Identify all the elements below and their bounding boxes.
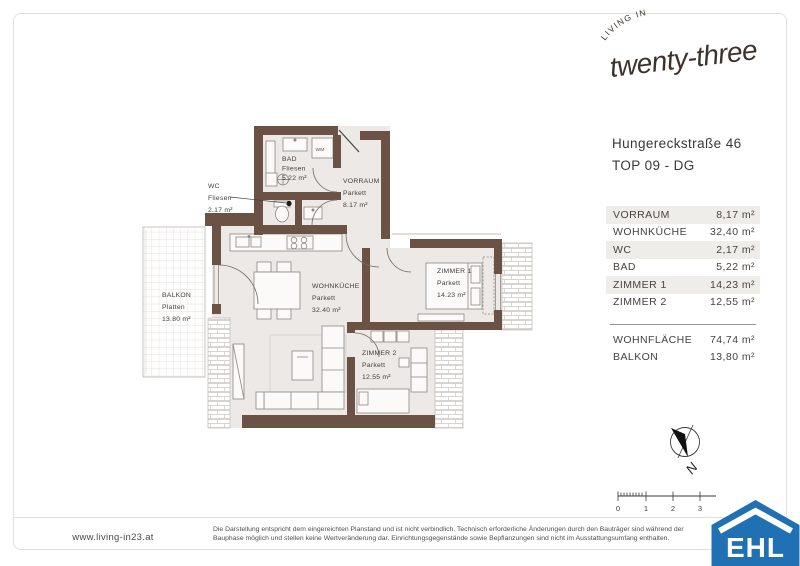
brand-logo: LIVING IN twenty-three: [585, 5, 795, 105]
room-label: ZIMMER 1: [613, 279, 667, 291]
room-floor: Parkett: [312, 295, 335, 302]
ehl-logo: EHL: [711, 499, 800, 566]
ehl-logo-text: EHL: [726, 532, 785, 563]
room-floor: Parkett: [437, 280, 460, 287]
scale-tick-label: 1: [644, 504, 648, 513]
room-floor: Parkett: [362, 362, 385, 369]
room-name: WC: [208, 183, 220, 190]
total-area: 13,80 m²: [710, 351, 755, 363]
table-row: BAD 5,22 m²: [606, 259, 760, 277]
room-name: ZIMMER 2: [362, 350, 396, 357]
north-arrow-icon: N: [658, 418, 718, 488]
table-row: VORRAUM 8,17 m²: [606, 206, 760, 224]
disclaimer-line1: Die Darstellung entspricht dem eingereic…: [213, 526, 713, 535]
address-unit: TOP 09 - DG: [612, 155, 742, 177]
room-label: WOHNKÜCHE: [613, 226, 687, 238]
wardrobe-zimmer2-icon: [371, 331, 409, 342]
total-row: BALKON 13,80 m²: [606, 349, 760, 367]
faucet-dot: [294, 139, 296, 141]
address-street: Hungereckstraße 46: [612, 133, 742, 155]
disclaimer-text: Die Darstellung entspricht dem eingereic…: [213, 526, 713, 544]
room-floor: Fliesen: [282, 166, 306, 173]
total-row: WOHNFLÄCHE 74,74 m²: [606, 331, 760, 349]
table-row: ZIMMER 1 14,23 m²: [606, 276, 760, 294]
address-block: Hungereckstraße 46 TOP 09 - DG: [612, 133, 742, 177]
brand-arc-text: LIVING IN: [599, 7, 648, 42]
table-row: ZIMMER 2 12,55 m²: [606, 294, 760, 312]
room-label: WC: [613, 244, 631, 256]
room-area: 12,55 m²: [710, 296, 755, 308]
wm-label: WM: [316, 147, 325, 153]
balcony-area: [143, 227, 205, 377]
room-area: 8.17 m²: [343, 202, 368, 209]
bed-zimmer2-icon: [357, 389, 409, 413]
scale-tick-label: 2: [671, 504, 675, 513]
room-name: WOHNKÜCHE: [312, 282, 360, 290]
room-area: 2.17 m²: [208, 207, 233, 214]
room-area: 5.22 m²: [282, 175, 307, 182]
room-floor: Platten: [162, 304, 185, 311]
table-row: WOHNKÜCHE 32,40 m²: [606, 224, 760, 242]
shower-icon: [266, 141, 275, 177]
tv-board-icon: [233, 344, 244, 399]
brand-script-text: twenty-three: [608, 34, 759, 83]
footer-separator: [14, 517, 784, 518]
total-label: BALKON: [613, 351, 658, 363]
totals-separator: [610, 324, 756, 325]
north-label: N: [683, 460, 701, 477]
floor-plan: WM BAD Fliesen 5.22 m² VORRAUM Parkett 8…: [130, 95, 550, 475]
area-table: VORRAUM 8,17 m² WOHNKÜCHE 32,40 m² WC 2,…: [606, 206, 760, 311]
room-label: BAD: [613, 261, 636, 273]
faucet-dot: [312, 209, 314, 211]
room-area: 12.55 m²: [362, 374, 391, 381]
coffee-table-icon: [292, 351, 313, 380]
room-area: 2,17 m²: [716, 244, 755, 256]
disclaimer-line2: Bauphase möglich und stellen keine Wertv…: [213, 535, 713, 544]
totals-table: WOHNFLÄCHE 74,74 m² BALKON 13,80 m²: [606, 331, 760, 366]
room-name: VORRAUM: [343, 178, 380, 185]
room-area: 32,40 m²: [710, 226, 755, 238]
room-area: 13.80 m²: [162, 316, 191, 323]
room-area: 8,17 m²: [716, 209, 755, 221]
room-floor: Fliesen: [208, 195, 232, 202]
room-area: 14.23 m²: [437, 292, 466, 299]
room-name: BALKON: [162, 292, 191, 299]
room-floor: Parkett: [343, 190, 366, 197]
total-label: WOHNFLÄCHE: [613, 334, 692, 346]
table-row: WC 2,17 m²: [606, 241, 760, 259]
room-name: BAD: [282, 156, 297, 163]
room-area: 32.40 m²: [312, 307, 341, 314]
website-label: www.living-in23.at: [53, 532, 173, 543]
kitchen-counter-icon: [230, 234, 342, 251]
scale-tick-label: 3: [698, 504, 702, 513]
plan-document: LIVING IN twenty-three Hungereckstraße 4…: [0, 0, 800, 566]
total-area: 74,74 m²: [710, 334, 755, 346]
room-label: ZIMMER 2: [613, 296, 667, 308]
room-area: 5,22 m²: [716, 261, 755, 273]
room-label: VORRAUM: [613, 209, 670, 221]
scale-tick-label: 0: [616, 504, 620, 513]
room-area: 14,23 m²: [710, 279, 755, 291]
room-name: ZIMMER 1: [437, 268, 471, 275]
